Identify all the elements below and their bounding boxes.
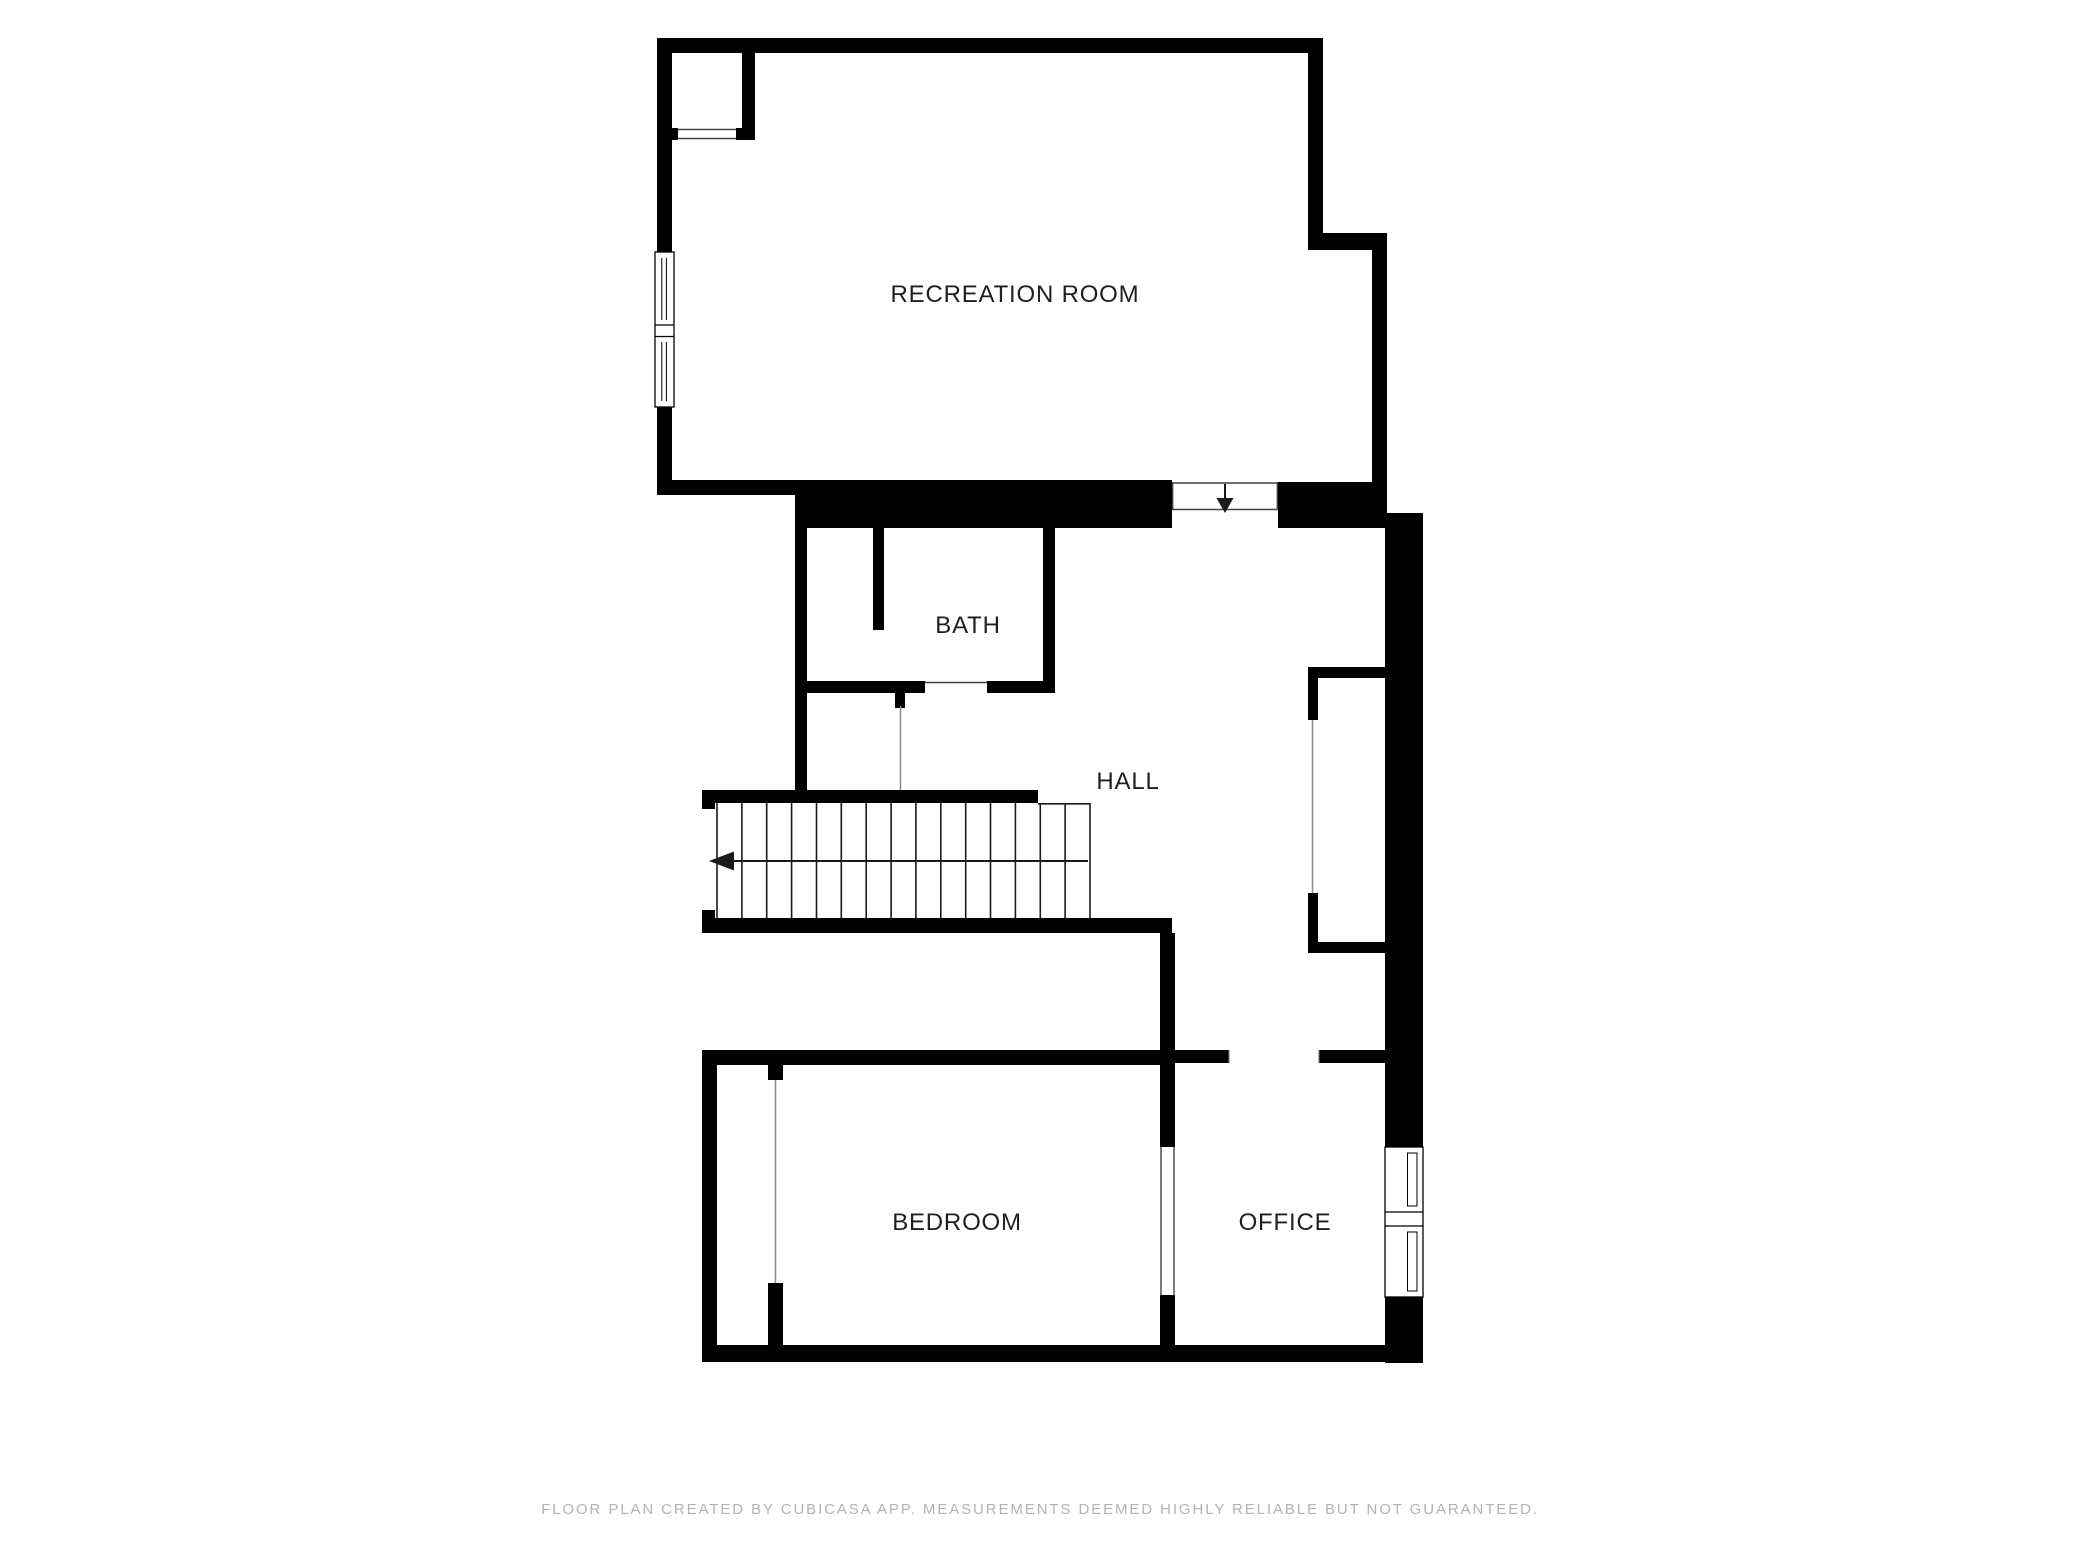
wall-entry-closet-side bbox=[742, 38, 755, 140]
floor-plan-drawing: RECREATION ROOM BATH HALL BEDROOM OFFICE… bbox=[0, 0, 2080, 1560]
entry-closet-door-jamb-east bbox=[736, 128, 742, 140]
wall-bedroom-west bbox=[702, 1065, 717, 1347]
wall-corridor-east bbox=[1160, 933, 1175, 1065]
room-label-office: OFFICE bbox=[1239, 1209, 1332, 1236]
wall-bath-bottom-east bbox=[987, 681, 1055, 693]
wall-recreation-west-upper bbox=[657, 38, 672, 252]
footer-disclaimer: FLOOR PLAN CREATED BY CUBICASA APP. MEAS… bbox=[541, 1501, 1539, 1518]
entry-closet-door-jamb-west bbox=[672, 128, 678, 140]
room-labels: RECREATION ROOM BATH HALL BEDROOM OFFICE bbox=[891, 281, 1332, 1236]
staircase bbox=[709, 803, 1090, 918]
wall-landing-divider-stub bbox=[895, 692, 905, 708]
wall-stairs-bottom bbox=[702, 918, 1172, 933]
wall-hall-east bbox=[1385, 513, 1423, 1147]
wall-office-top-west bbox=[1175, 1050, 1228, 1063]
wall-stairs-top bbox=[702, 790, 1038, 803]
wall-bedroom-top bbox=[702, 1050, 1160, 1065]
wall-bath-bottom-west bbox=[807, 681, 925, 693]
floor-plan-page: RECREATION ROOM BATH HALL BEDROOM OFFICE… bbox=[0, 0, 2080, 1560]
room-label-bath: BATH bbox=[935, 612, 1000, 639]
wall-west-bath-landing bbox=[795, 495, 807, 803]
room-label-recreation-room: RECREATION ROOM bbox=[891, 281, 1140, 308]
entry-arrow-down bbox=[1217, 484, 1234, 513]
room-label-bedroom: BEDROOM bbox=[892, 1209, 1022, 1236]
wall-bath-east bbox=[1043, 528, 1055, 692]
wall-hall-closet-top bbox=[1308, 667, 1385, 678]
room-label-hall: HALL bbox=[1096, 768, 1159, 795]
wall-recreation-east-upper bbox=[1308, 38, 1323, 250]
wall-office-west-upper bbox=[1160, 1065, 1175, 1147]
interior-walls bbox=[672, 38, 1385, 1347]
stairs-west-jamb-bottom bbox=[702, 910, 715, 918]
wall-recreation-east-notch bbox=[1308, 233, 1387, 250]
recreation-room-west-window bbox=[655, 252, 674, 407]
wall-office-west-lower bbox=[1160, 1295, 1175, 1347]
wall-bottom bbox=[702, 1345, 1423, 1362]
wall-bedroom-closet-jamb-top bbox=[768, 1065, 783, 1080]
wall-bedroom-closet-jamb-bottom bbox=[768, 1283, 783, 1347]
wall-recreation-bottom-east bbox=[1278, 482, 1387, 528]
wall-office-top-east bbox=[1320, 1050, 1385, 1063]
wall-hall-closet-bottom bbox=[1308, 942, 1385, 953]
wall-bath-alcove bbox=[873, 528, 884, 630]
stairs-arrow-left bbox=[709, 852, 1088, 871]
office-east-window bbox=[1385, 1147, 1423, 1297]
stairs-west-jamb-top bbox=[702, 803, 715, 809]
wall-hall-closet-jamb-top bbox=[1308, 678, 1318, 720]
wall-recreation-bath-band bbox=[795, 480, 1172, 528]
wall-recreation-bottom-west bbox=[657, 480, 807, 495]
wall-recreation-top bbox=[657, 38, 1323, 53]
